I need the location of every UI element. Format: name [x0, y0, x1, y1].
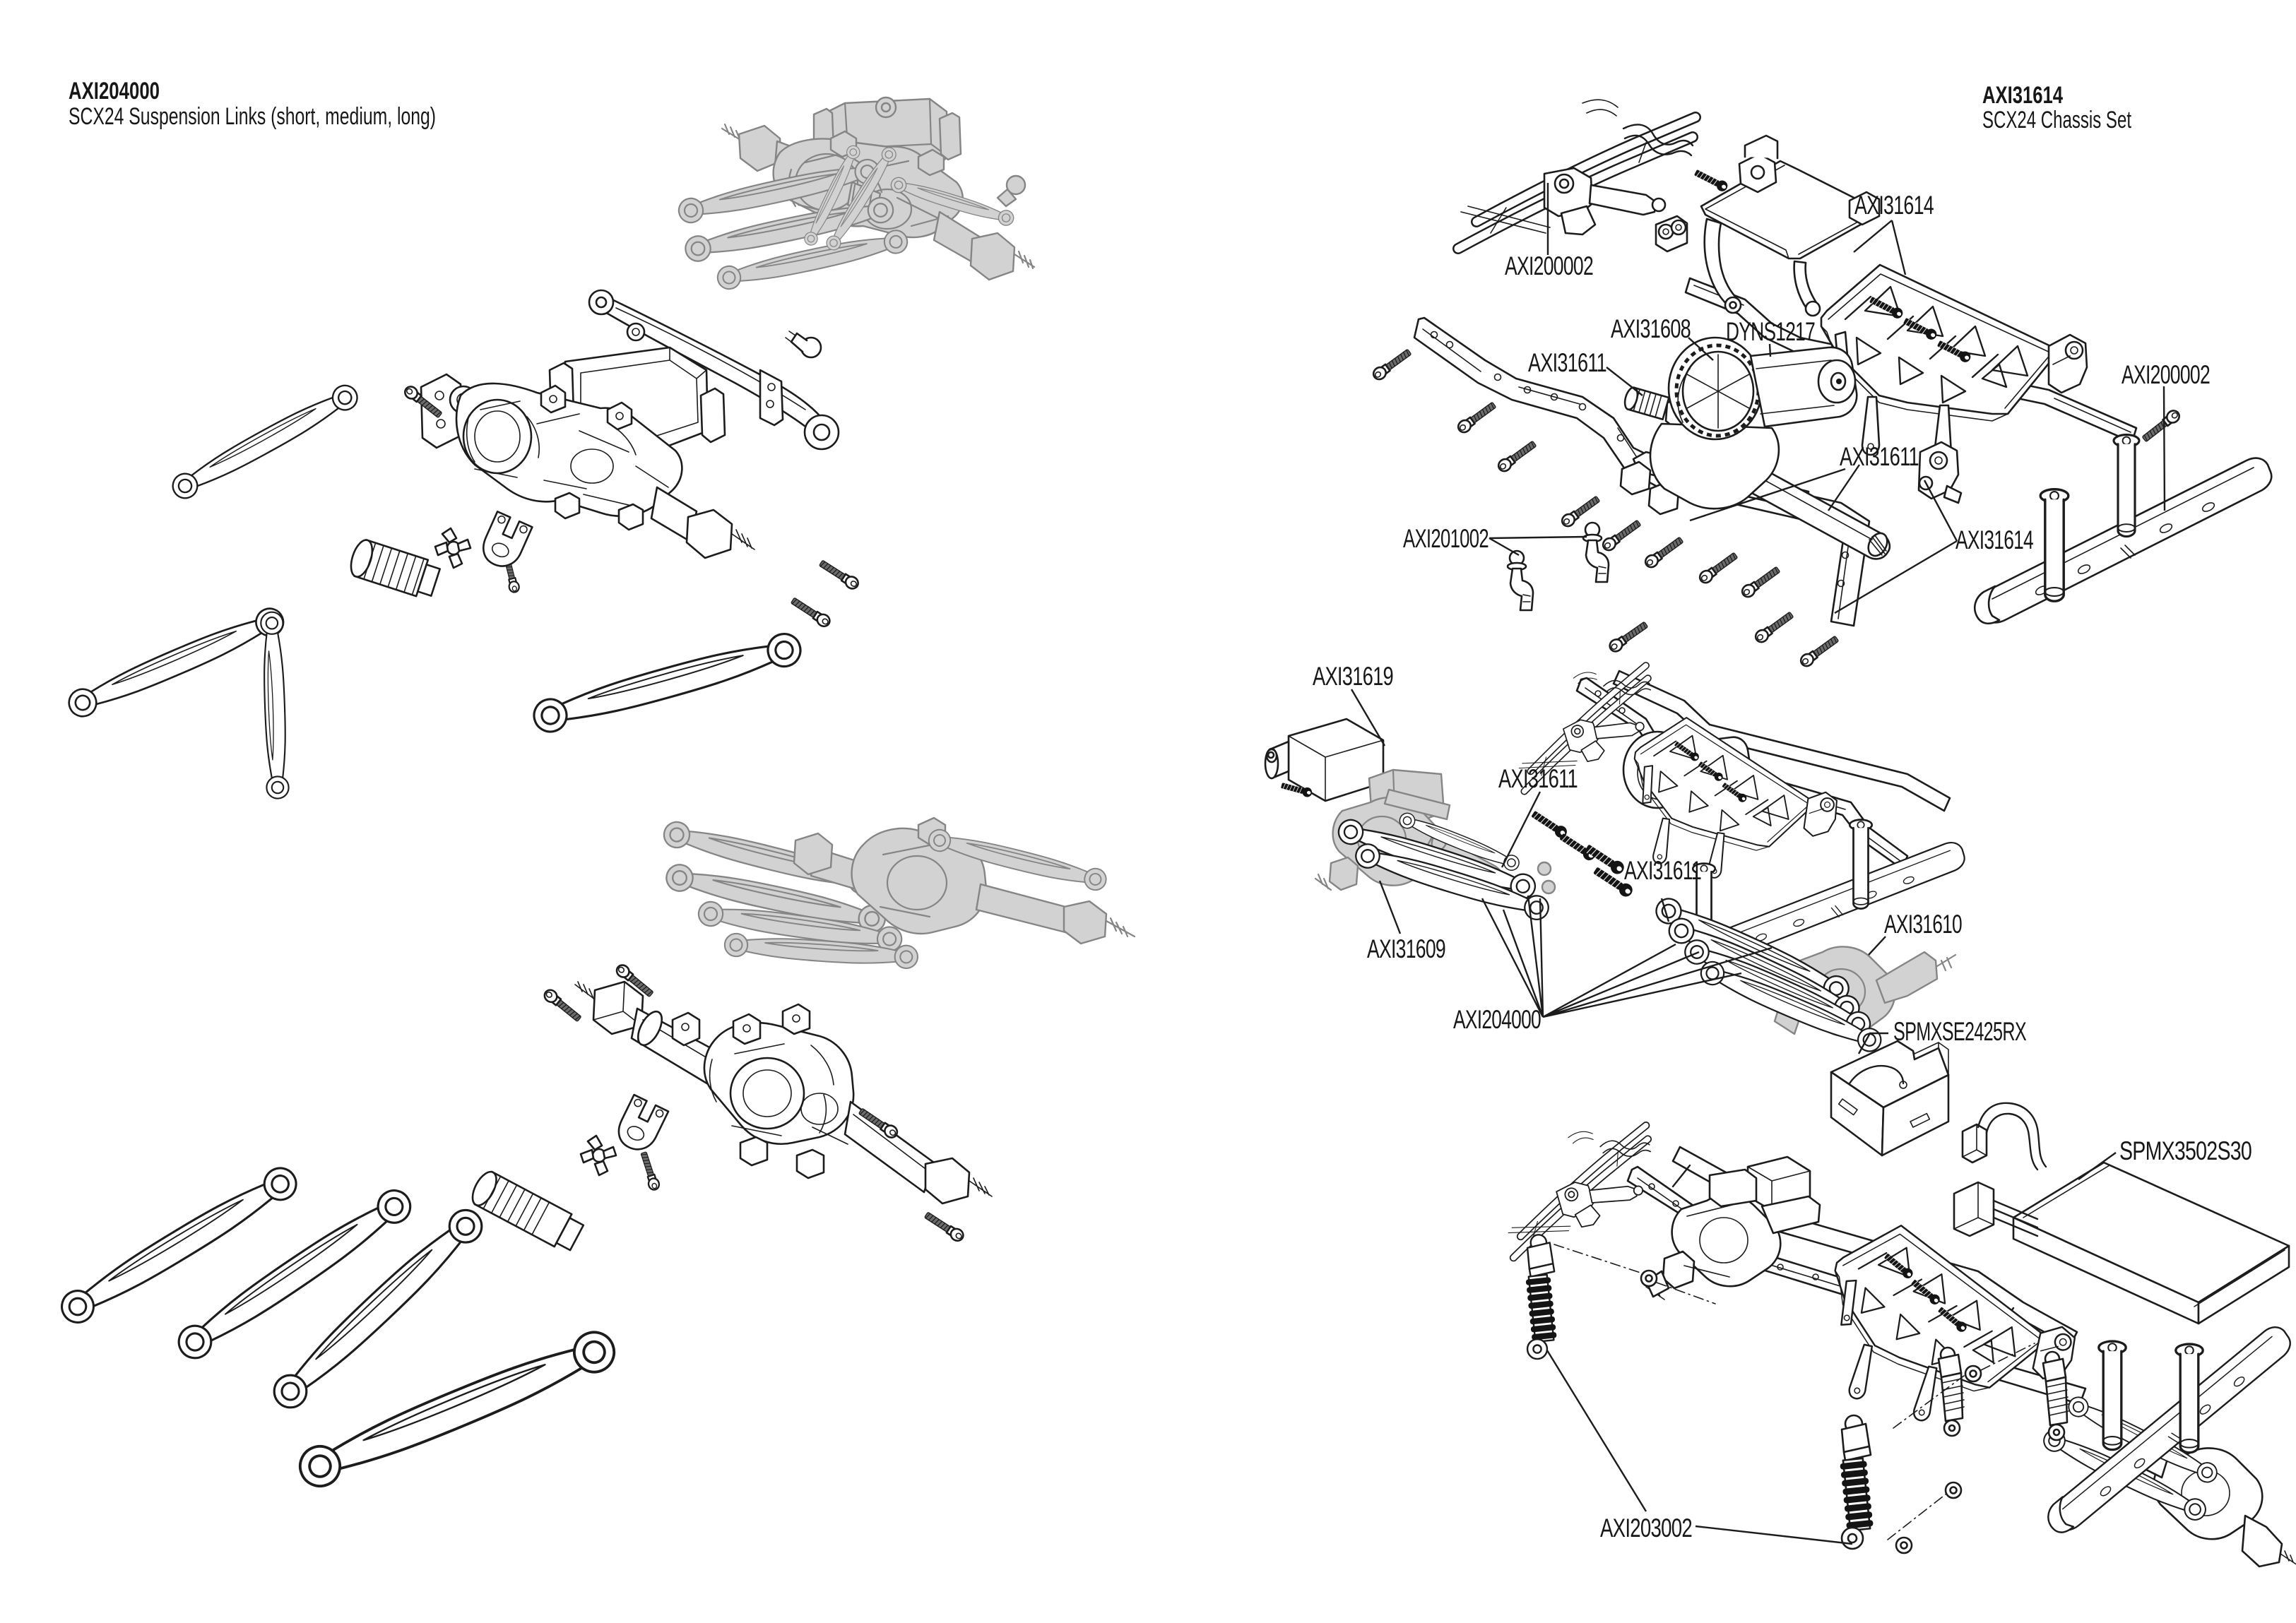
svg-text:AXI31609: AXI31609 — [1367, 934, 1445, 963]
svg-text:AXI31611: AXI31611 — [1498, 764, 1578, 793]
svg-text:AXI31614: AXI31614 — [1854, 191, 1934, 220]
svg-text:AXI200002: AXI200002 — [2122, 360, 2210, 389]
svg-text:AXI204000: AXI204000 — [1453, 1005, 1541, 1034]
svg-text:AXI200002: AXI200002 — [1505, 251, 1593, 280]
svg-text:AXI204000: AXI204000 — [69, 78, 160, 105]
svg-text:SPMXSE2425RX: SPMXSE2425RX — [1893, 1017, 2026, 1046]
svg-text:AXI201002: AXI201002 — [1403, 524, 1489, 553]
svg-text:AXI31611: AXI31611 — [1528, 348, 1606, 377]
svg-text:DYNS1217: DYNS1217 — [1726, 317, 1815, 346]
svg-text:AXI31611: AXI31611 — [1624, 856, 1701, 885]
svg-text:AXI31610: AXI31610 — [1884, 910, 1962, 939]
svg-text:AXI31608: AXI31608 — [1611, 314, 1691, 343]
svg-text:SCX24 Suspension Links (short,: SCX24 Suspension Links (short, medium, l… — [69, 103, 436, 130]
svg-text:SPMX3502S30: SPMX3502S30 — [2119, 1136, 2251, 1165]
svg-text:AXI203002: AXI203002 — [1600, 1514, 1692, 1542]
svg-text:SCX24 Chassis Set: SCX24 Chassis Set — [1982, 107, 2131, 133]
svg-text:AXI31614: AXI31614 — [1982, 82, 2063, 109]
svg-text:AXI31619: AXI31619 — [1313, 662, 1393, 691]
svg-text:AXI31611: AXI31611 — [1840, 442, 1919, 471]
svg-text:AXI31614: AXI31614 — [1955, 525, 2033, 554]
